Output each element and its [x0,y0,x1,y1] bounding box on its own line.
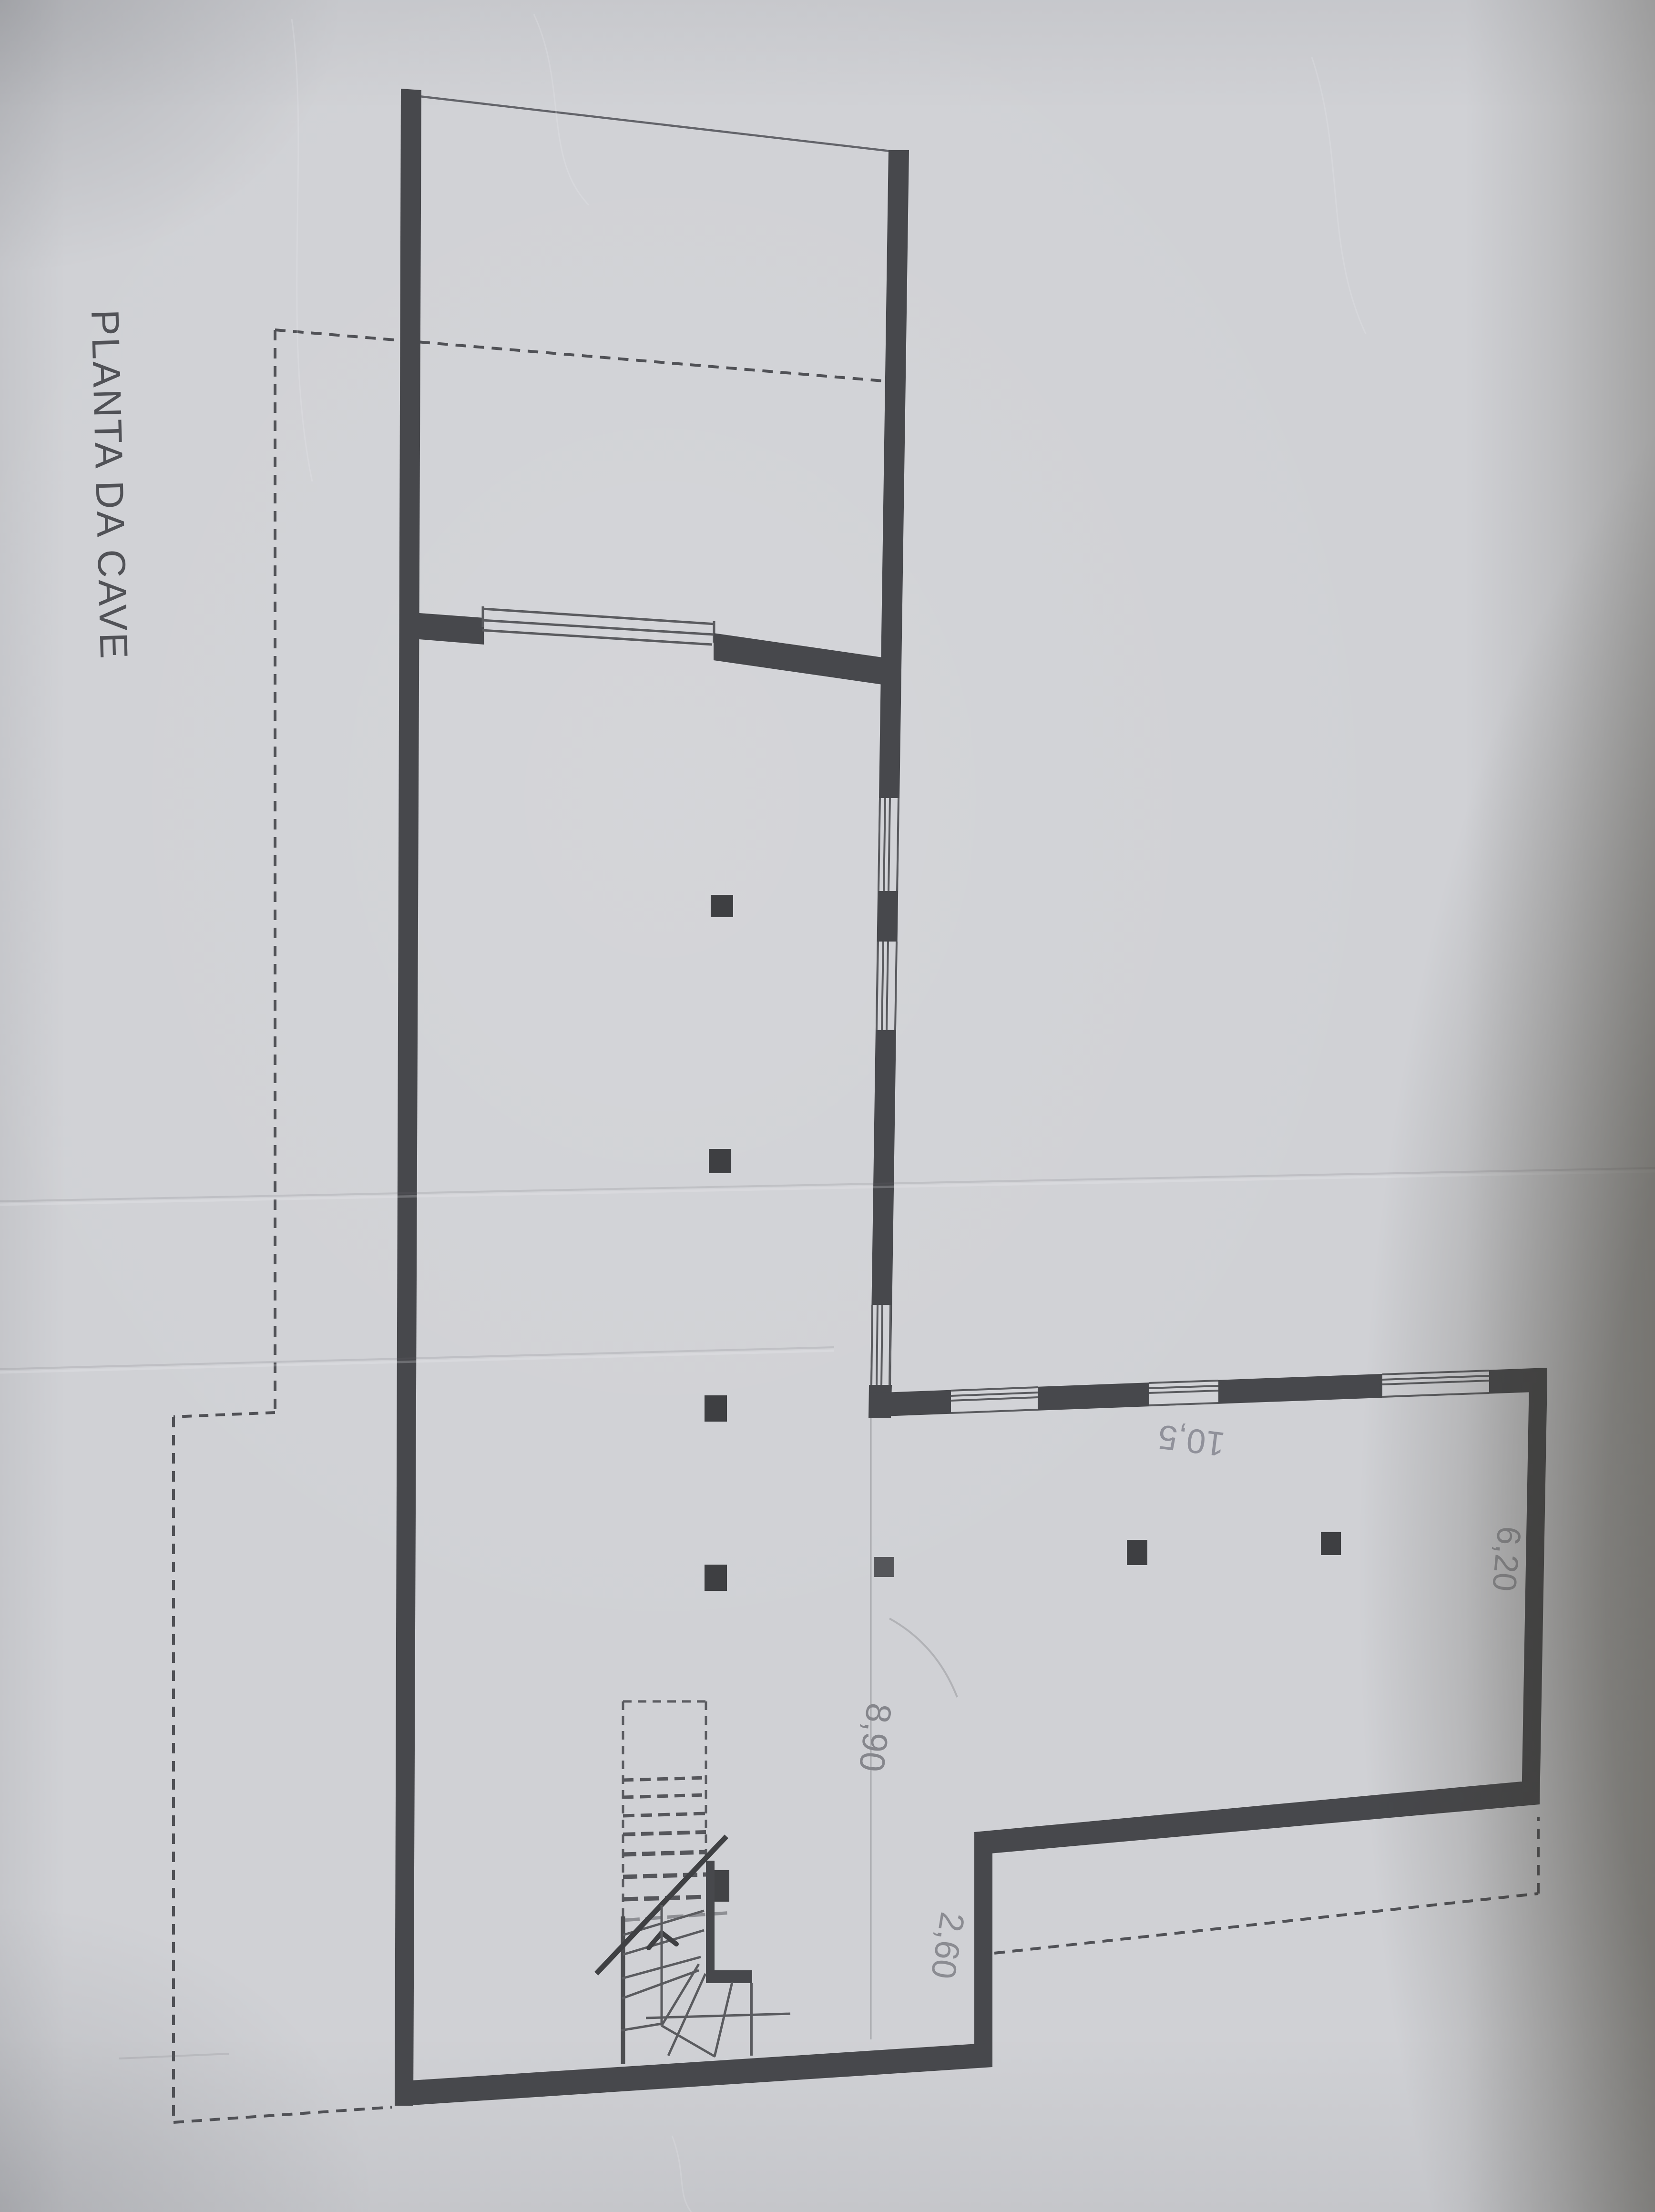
svg-text:8,90: 8,90 [852,1701,899,1774]
svg-text:PLANTA DA CAVE: PLANTA DA CAVE [83,309,135,661]
svg-text:10,5: 10,5 [1156,1417,1227,1463]
svg-text:6,20: 6,20 [1485,1525,1528,1593]
svg-text:2,60: 2,60 [923,1909,971,1981]
